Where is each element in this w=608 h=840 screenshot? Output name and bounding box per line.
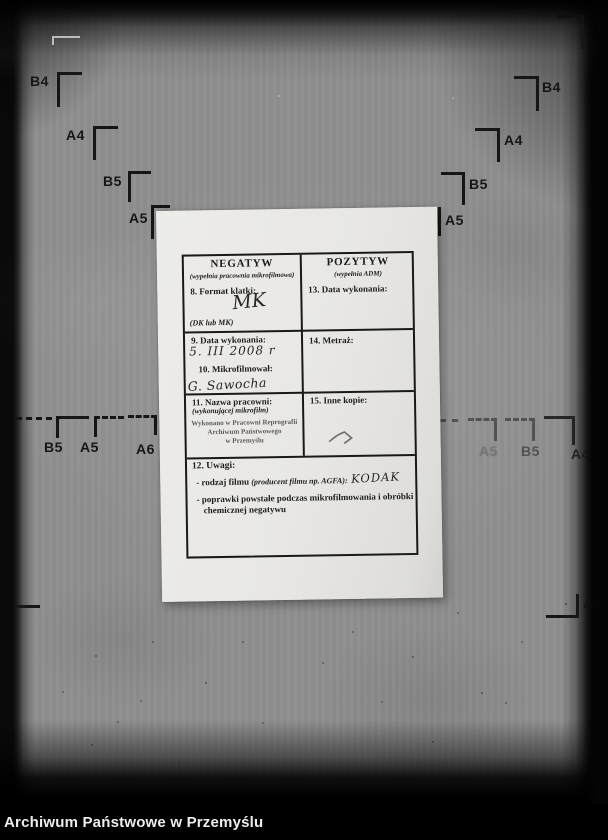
field-15-label: 15. Inne kopie: — [310, 395, 367, 406]
corner-bracket-icon — [128, 171, 151, 202]
corner-bracket-icon — [505, 418, 535, 441]
corner-bracket-icon — [546, 594, 579, 618]
frame-dash-mark — [16, 605, 40, 608]
format-mark-label-partial: A — [597, 17, 608, 31]
film-right-edge — [585, 0, 608, 840]
stamp-line: w Przemyślu — [187, 436, 303, 447]
field-12-item2-line1: - poprawki powstałe podczas mikrofilmowa… — [196, 491, 413, 505]
film-top-edge — [0, 0, 608, 26]
corner-bracket-icon — [475, 128, 500, 162]
format-mark-label: A4 — [504, 133, 523, 147]
frame-dash-mark — [16, 417, 52, 420]
film-notch-mark — [52, 36, 80, 45]
format-mark-label: B4 — [30, 74, 49, 88]
archive-name-label: Archiwum Państwowe w Przemyślu — [0, 814, 263, 831]
field-10-label: 10. Mikrofilmował: — [198, 363, 272, 375]
pozytyw-subheading: (wypełnia ADM) — [301, 269, 415, 279]
table-row-divider — [185, 328, 413, 334]
format-mark-label: A5 — [80, 440, 99, 454]
pozytyw-heading: POZYTYW — [301, 255, 415, 269]
form-table: NEGATYW (wypełnia pracownia mikrofilmowa… — [182, 251, 419, 559]
corner-bracket-icon — [94, 416, 124, 437]
corner-bracket-icon — [438, 207, 441, 236]
field-13-label: 13. Data wykonania: — [308, 283, 387, 295]
format-mark-label: A5 — [129, 211, 148, 225]
field-12-item2-line2: chemicznej negatywu — [204, 504, 286, 516]
field-12-item1-handwritten-value: KODAK — [351, 470, 400, 486]
format-mark-label: B5 — [44, 440, 63, 454]
corner-bracket-icon — [128, 415, 157, 435]
table-row-divider — [187, 454, 415, 460]
format-mark-label: B5 — [521, 444, 540, 458]
archive-caption-bar: Archiwum Państwowe w Przemyślu — [0, 804, 608, 840]
format-mark-label: B5 — [469, 177, 488, 191]
format-mark-label: A4 — [583, 596, 602, 610]
format-mark-label: A4 — [66, 128, 85, 142]
field-9-handwritten-value: 5. III 2008 r — [189, 344, 276, 359]
corner-bracket-icon — [514, 76, 539, 111]
format-mark-label: A4 — [571, 447, 590, 461]
corner-bracket-icon — [441, 172, 465, 205]
field-12-label: 12. Uwagi: — [192, 461, 235, 473]
negatyw-subheading: (wypełnia pracownia mikrofilmowa) — [184, 271, 300, 281]
corner-bracket-icon — [468, 418, 497, 441]
corner-bracket-icon — [93, 126, 118, 160]
format-mark-label: B5 — [103, 174, 122, 188]
corner-bracket-icon — [57, 72, 82, 107]
handwritten-check-squiggle — [328, 430, 356, 446]
field-12-item1-text: - rodzaj filmu — [196, 477, 251, 488]
microfilm-scan: B4 A4 B5 A5 A B4 A4 B5 A5 B5 A5 A6 A5 B5… — [0, 0, 608, 840]
corner-bracket-icon — [557, 15, 584, 49]
frame-dash-mark — [440, 419, 458, 422]
field-12-item1-note: (producent filmu np. AGFA): — [251, 476, 347, 487]
field-8-handwritten-value: MK — [231, 290, 267, 315]
format-mark-label: A5 — [479, 444, 498, 458]
corner-bracket-icon — [56, 416, 89, 438]
microfilm-data-sheet: NEGATYW (wypełnia pracownia mikrofilmowa… — [156, 207, 443, 602]
field-14-label: 14. Metraż: — [309, 335, 354, 346]
field-11-subtitle: (wykonującej mikrofilm) — [192, 406, 269, 416]
format-mark-label: B4 — [542, 80, 561, 94]
format-mark-label: A6 — [136, 442, 155, 456]
workshop-stamp: Wykonano w Pracowni Reprografii Archiwum… — [186, 418, 302, 447]
negatyw-heading: NEGATYW — [184, 257, 300, 271]
format-mark-label: A5 — [445, 213, 464, 227]
corner-bracket-icon — [544, 416, 575, 445]
film-speckles — [0, 0, 2, 2]
field-8-hint: (DK lub MK) — [190, 318, 234, 328]
